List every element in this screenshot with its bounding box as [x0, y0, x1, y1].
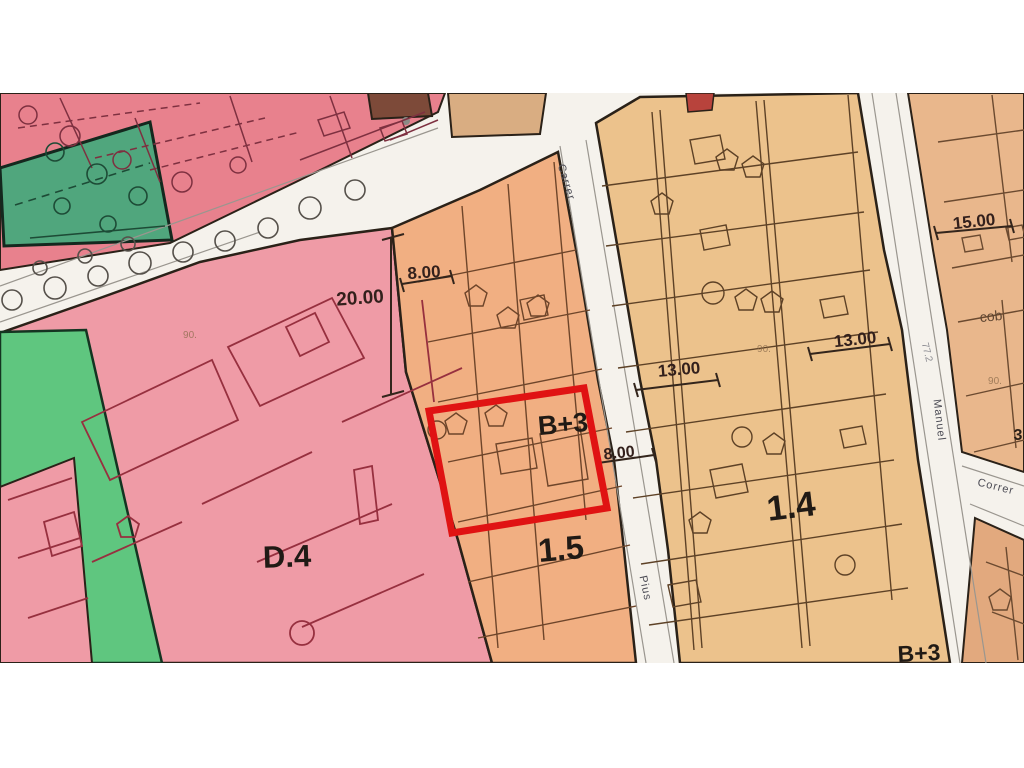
annotation-3-edge: 3 [1014, 427, 1023, 444]
annotation-cob: cob [979, 307, 1003, 325]
building-block-tan [448, 93, 546, 137]
dimension-label-8-mid: 8.00 [603, 443, 636, 463]
zone-label-b3-highlight: B+3 [537, 407, 590, 441]
zoning-plan-screenshot: D.4 1.5 1.4 B+3 B+3 8.00 20.00 8.00 13.0… [0, 0, 1024, 768]
dimension-label-13-left: 13.00 [657, 358, 701, 381]
top-white-band [0, 0, 1024, 93]
zone-label-d4: D.4 [262, 538, 312, 575]
zone-label-1-5: 1.5 [536, 528, 585, 569]
bottom-white-band [0, 663, 1024, 768]
zone-label-b3-corner: B+3 [897, 639, 941, 667]
annotation-90-tan: 90. [757, 344, 771, 355]
annotation-90-right: 90. [988, 376, 1002, 387]
zoning-map: D.4 1.5 1.4 B+3 B+3 8.00 20.00 8.00 13.0… [0, 0, 1024, 768]
building-block-red [686, 93, 714, 112]
dimension-label-20: 20.00 [336, 286, 385, 310]
zone-label-1-4: 1.4 [765, 484, 819, 529]
building-block-brown [368, 93, 432, 119]
dimension-label-8-top: 8.00 [407, 262, 441, 283]
annotation-90-pink: 90. [183, 330, 197, 341]
